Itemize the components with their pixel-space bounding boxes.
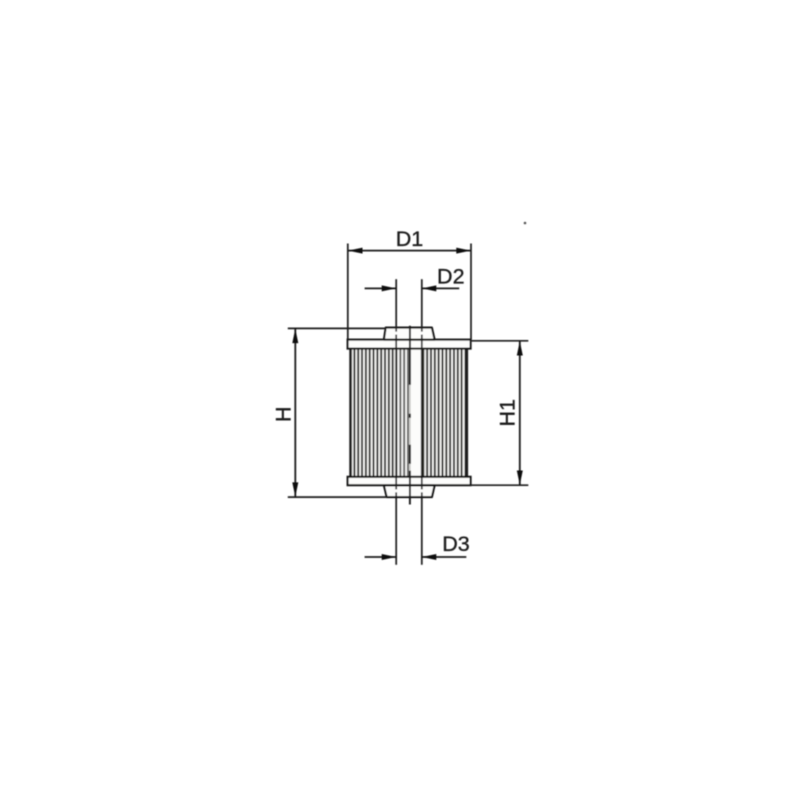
svg-text:D3: D3 (442, 532, 470, 556)
svg-text:D2: D2 (437, 265, 464, 289)
svg-text:D1: D1 (396, 227, 423, 251)
svg-text:H: H (271, 407, 295, 423)
svg-text:H1: H1 (496, 399, 520, 426)
